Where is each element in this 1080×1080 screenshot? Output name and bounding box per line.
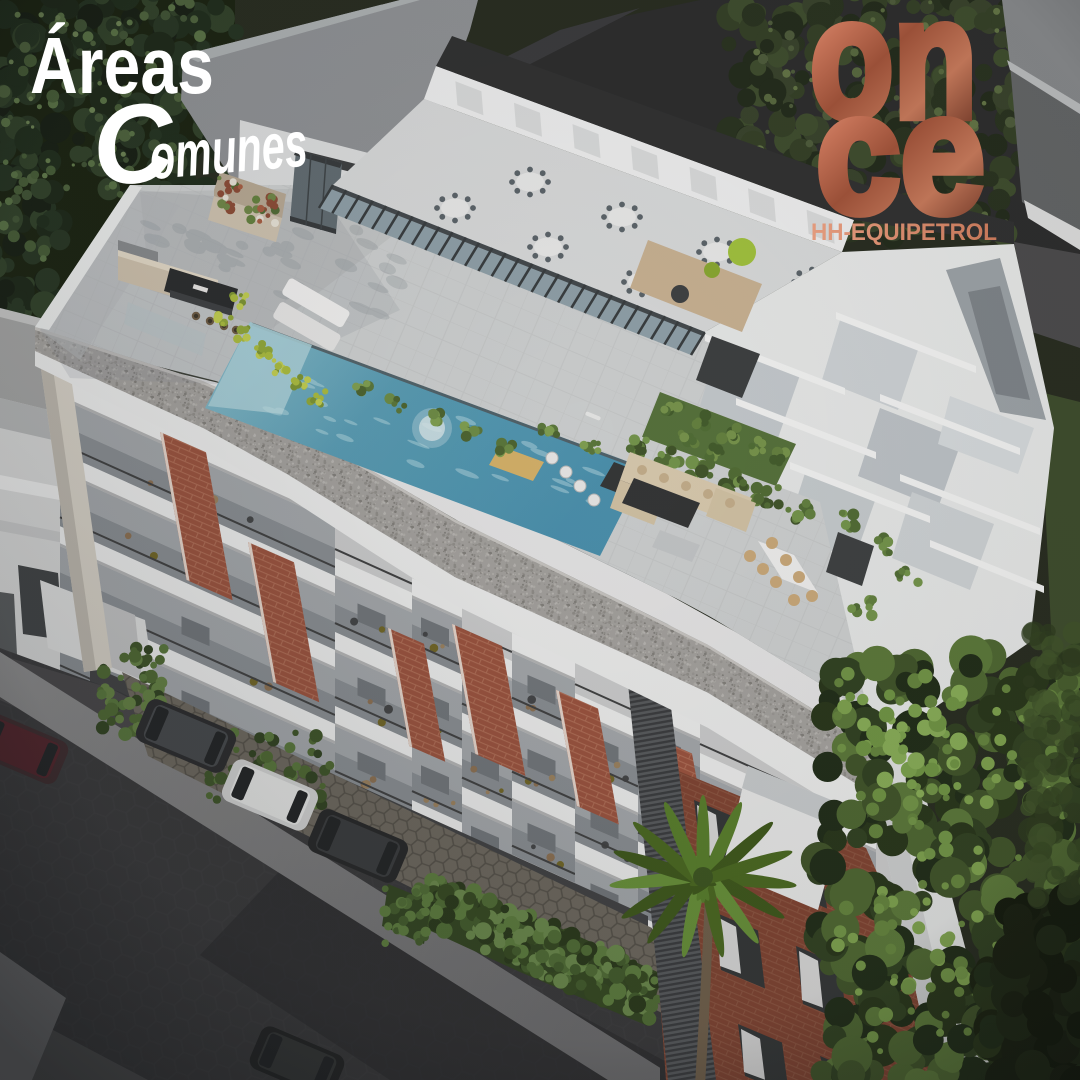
svg-text:HH-EQUIPETROL: HH-EQUIPETROL <box>811 219 997 246</box>
svg-text:omunes: omunes <box>147 108 311 193</box>
